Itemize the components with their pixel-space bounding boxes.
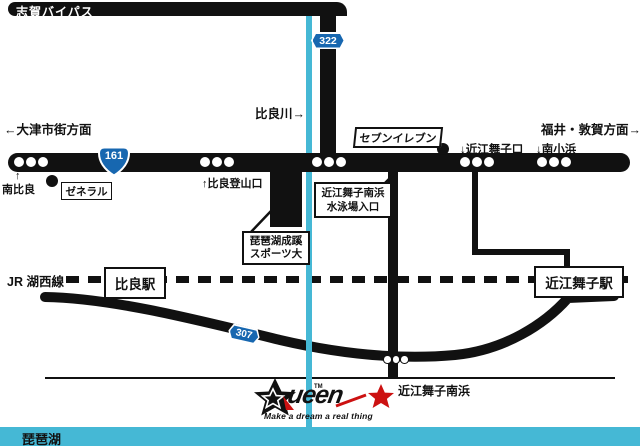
hira-tozan-label: ↑比良登山口 (202, 175, 263, 191)
signal-light (311, 156, 323, 168)
general-station-box: ゼネラル (61, 182, 112, 200)
general-station-label: ゼネラル (66, 184, 108, 199)
signal-light (199, 156, 211, 168)
route-map: 琵琶湖 志賀バイパス 322 比良川→ ←大津市街方面 福井・敦賀方面→ 161… (0, 0, 640, 446)
hira-station-label: 比良駅 (115, 273, 156, 293)
signal-light (383, 355, 392, 364)
route-322-number: 322 (319, 35, 337, 47)
route-307-number: 307 (235, 327, 254, 341)
signal-light (548, 156, 560, 168)
omimaiko-station-label: 近江舞子駅 (545, 272, 613, 292)
signal-light (471, 156, 483, 168)
signal-minami-hira (13, 156, 49, 168)
lake-label: 琵琶湖 (22, 429, 61, 446)
signal-light (25, 156, 37, 168)
route-161-badge: 161 (96, 145, 132, 178)
minami-hira-label: 南比良 (2, 181, 35, 197)
direction-east-label: 福井・敦賀方面→ (541, 119, 640, 138)
beach-label: 近江舞子南浜 (398, 382, 470, 399)
direction-west-label: ←大津市街方面 (4, 119, 92, 138)
college-building (270, 172, 302, 227)
station-road-horizontal (472, 249, 570, 255)
signal-light (335, 156, 347, 168)
seven-eleven-box: セブンイレブン (353, 127, 443, 148)
signal-light (483, 156, 495, 168)
college-label-line2: スポーツ大 (250, 248, 302, 261)
signal-light (536, 156, 548, 168)
hira-river-label: 比良川→ (255, 103, 305, 122)
omimaiko-station-box: 近江舞子駅 (534, 266, 624, 298)
hira-river (306, 16, 312, 427)
signal-light (459, 156, 471, 168)
college-box: 琵琶湖成蹊 スポーツ大 (242, 231, 310, 265)
swim-entrance-line2: 水泳場入口 (327, 200, 380, 214)
route-307-road (45, 296, 614, 357)
signal-minami-kohama (536, 156, 572, 168)
seven-eleven-label: セブンイレブン (359, 130, 438, 146)
logo-tagline: Make a dream a real thing (264, 411, 373, 421)
lake-biwa (0, 427, 640, 446)
signal-light (323, 156, 335, 168)
swim-entrance-box: 近江舞子南浜 水泳場入口 (314, 182, 392, 218)
jr-line-label: JR 湖西線 (7, 271, 64, 290)
signal-light (392, 355, 401, 364)
route-322-road (320, 4, 336, 172)
signal-swim-entrance (311, 156, 347, 168)
signal-beach (383, 355, 409, 364)
logo-tm: TM (314, 384, 323, 390)
signal-light (560, 156, 572, 168)
signal-light (400, 355, 409, 364)
hira-station-box: 比良駅 (104, 267, 166, 299)
shoreline (45, 377, 615, 379)
college-label-line1: 琵琶湖成蹊 (250, 235, 303, 248)
station-road-vertical1 (472, 172, 478, 255)
signal-light (37, 156, 49, 168)
signal-hira-tozan (199, 156, 235, 168)
signal-omimaiko-guchi (459, 156, 495, 168)
signal-light (223, 156, 235, 168)
signal-light (13, 156, 25, 168)
shiga-bypass-label: 志賀バイパス (16, 3, 94, 20)
route-161-number: 161 (96, 150, 132, 162)
route-322-badge: 322 (311, 32, 345, 49)
signal-light (211, 156, 223, 168)
swim-entrance-line1: 近江舞子南浜 (322, 186, 385, 200)
